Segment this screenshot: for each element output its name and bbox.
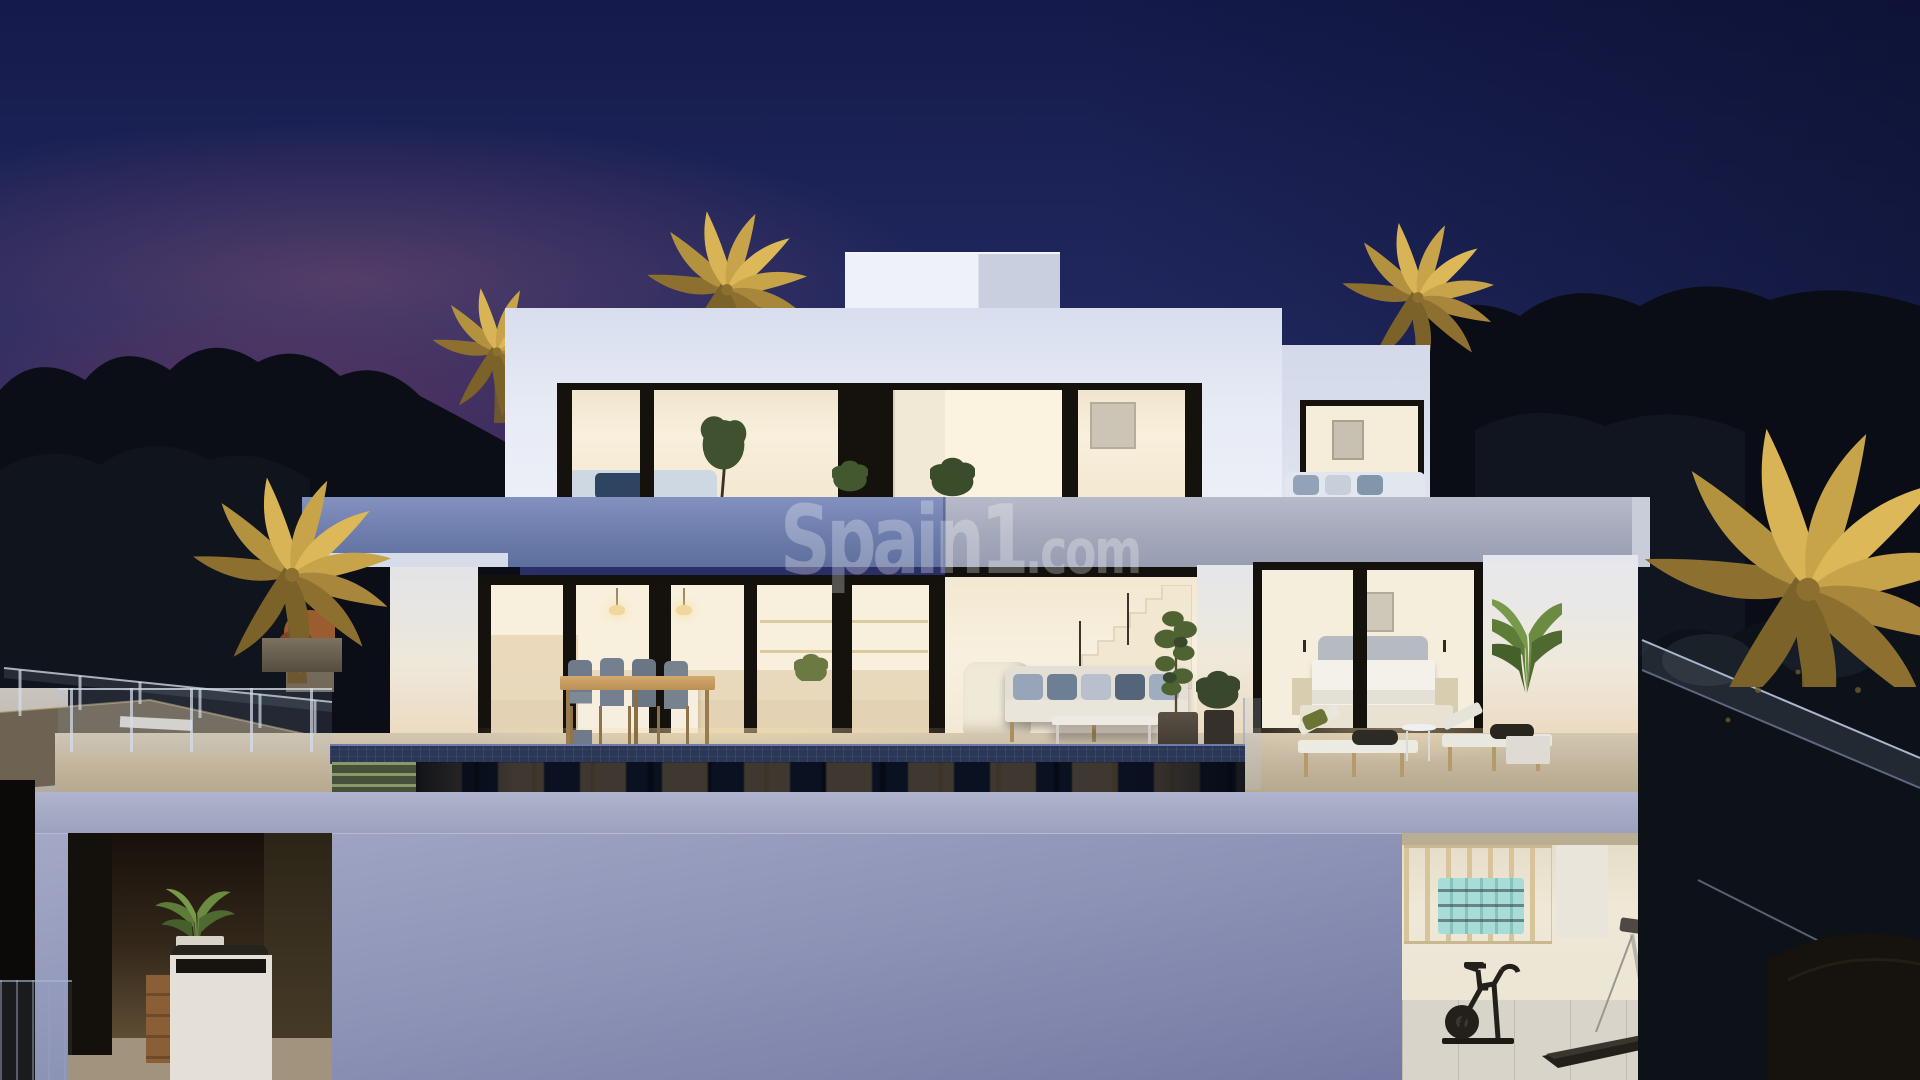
watermark-brand: Spain1 bbox=[780, 486, 1025, 596]
exercise-bike bbox=[1428, 926, 1524, 1048]
pool-end-glass-panel bbox=[1243, 698, 1261, 790]
upper-window-band bbox=[557, 383, 1202, 500]
window-frame-top bbox=[1253, 562, 1483, 570]
plant-pot bbox=[1158, 712, 1198, 748]
railing-post bbox=[310, 688, 313, 752]
window-mullion bbox=[1185, 383, 1202, 500]
window-mullion bbox=[832, 575, 852, 745]
palm-planter bbox=[262, 638, 342, 672]
glass-railing-left bbox=[58, 688, 332, 754]
railing-post bbox=[250, 688, 253, 752]
terrace-plant-right bbox=[1492, 596, 1562, 746]
cushion bbox=[1357, 475, 1383, 495]
pendant-lamp-shade bbox=[609, 605, 625, 615]
window-mullion bbox=[557, 383, 572, 500]
pendant-lamp-shade bbox=[676, 605, 692, 615]
hot-tub bbox=[170, 955, 272, 1080]
wall-lamp bbox=[1443, 640, 1446, 652]
left-glass-balustrade bbox=[0, 980, 72, 1080]
hot-tub-water bbox=[176, 959, 266, 973]
railing-post bbox=[190, 688, 193, 752]
wall-art-upper bbox=[1090, 402, 1136, 449]
wood-cabinet bbox=[146, 975, 170, 1063]
cushion bbox=[1047, 674, 1077, 700]
pendant-lamp bbox=[683, 588, 685, 606]
terrace-fascia bbox=[35, 792, 1742, 835]
water-edge-fade bbox=[416, 762, 1245, 794]
railing-post bbox=[130, 688, 133, 752]
plant-pot-white bbox=[1506, 736, 1550, 764]
coffee-table bbox=[1052, 716, 1158, 725]
window-mullion bbox=[478, 575, 491, 745]
watermark: Spain1.com bbox=[780, 486, 1140, 596]
window-mullion bbox=[929, 575, 945, 745]
side-table-legs bbox=[1406, 731, 1432, 761]
watermark-tld: .com bbox=[1025, 515, 1140, 588]
bed-blanket bbox=[1312, 690, 1435, 704]
wall-art-wing bbox=[1332, 420, 1364, 460]
wall-lamp bbox=[1303, 640, 1306, 652]
window-mullion bbox=[640, 383, 654, 500]
spa-patio bbox=[68, 833, 332, 1080]
cushion bbox=[1293, 475, 1319, 495]
cushion bbox=[1081, 674, 1111, 700]
wing-sofa-cushions bbox=[1285, 472, 1425, 500]
railing-post bbox=[70, 688, 73, 752]
villa-night-render: Spain1.com bbox=[0, 0, 1920, 1080]
kitchen-window bbox=[478, 575, 945, 745]
cushion bbox=[1325, 475, 1351, 495]
patio-column bbox=[68, 833, 112, 1055]
bedroom-window bbox=[1253, 562, 1483, 738]
lounger-legs bbox=[1304, 753, 1412, 777]
window-mullion bbox=[744, 575, 757, 745]
side-table bbox=[1402, 724, 1436, 731]
upper-terrace-tree bbox=[695, 415, 752, 505]
dining-table bbox=[560, 676, 715, 690]
window-mullion bbox=[1353, 562, 1367, 738]
pool-water bbox=[416, 762, 1245, 794]
dining-chair-legs bbox=[570, 706, 690, 748]
stair-bulkhead bbox=[845, 252, 1060, 312]
palm-tree-far-right bbox=[1593, 375, 1920, 687]
pool-steps-lit bbox=[332, 762, 416, 794]
plant-pot bbox=[1204, 710, 1234, 748]
pool-rim-tiles bbox=[330, 744, 1245, 764]
lounger-towel bbox=[1352, 730, 1398, 745]
kitchen-plant bbox=[794, 651, 828, 681]
window-mullion bbox=[1062, 383, 1078, 500]
cushion bbox=[1115, 674, 1145, 700]
cushion bbox=[1013, 674, 1043, 700]
pendant-lamp bbox=[616, 588, 618, 606]
ground-pier-left bbox=[390, 567, 478, 745]
